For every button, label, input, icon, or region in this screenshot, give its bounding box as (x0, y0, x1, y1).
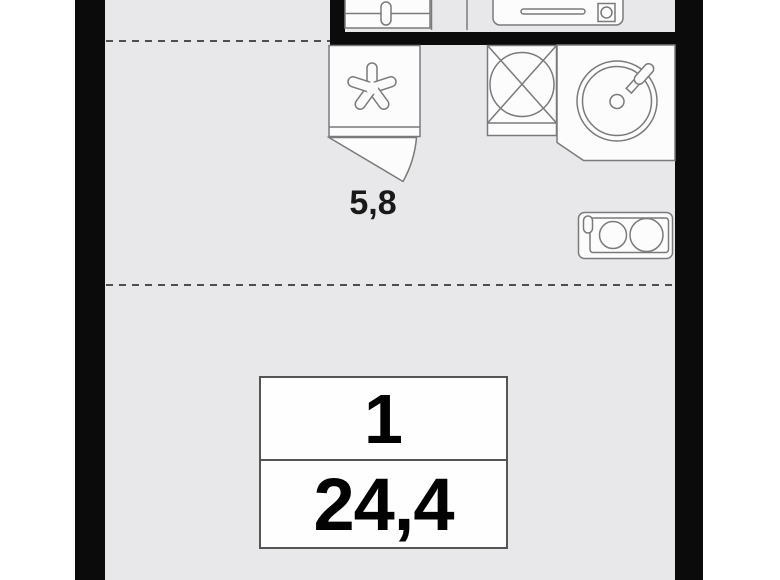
unit-label-box: 1 24,4 (259, 376, 508, 549)
unit-total-area: 24,4 (261, 461, 506, 547)
floor-plan: 5,8 1 24,4 (0, 0, 780, 580)
washing-machine-icon (488, 46, 557, 136)
kitchen-sink-icon (557, 45, 675, 161)
unit-rooms-count: 1 (261, 378, 506, 461)
cabinet-divider-lines (432, 0, 468, 30)
fridge-snowflake-icon (329, 46, 420, 137)
wash-basin-icon (345, 0, 430, 28)
cooktop-icon (579, 213, 673, 259)
door-swing-icon (329, 138, 417, 182)
bathtub-icon (493, 0, 623, 25)
kitchen-area-label: 5,8 (334, 184, 412, 223)
